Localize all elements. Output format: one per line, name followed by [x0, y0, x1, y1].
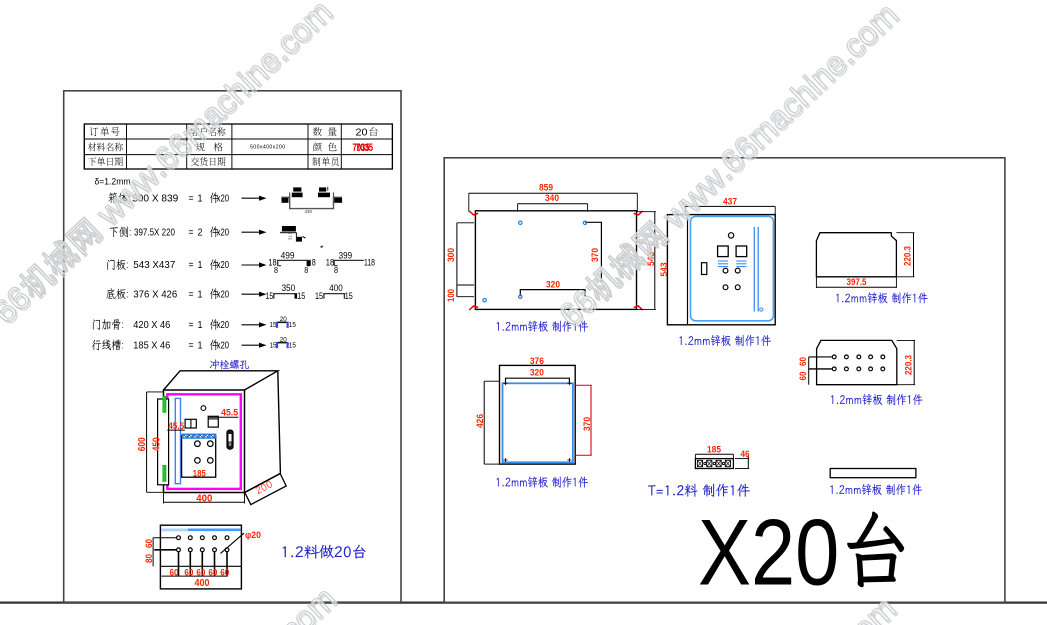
svg-text:2: 2	[198, 226, 203, 238]
svg-text:δ=1.2mm: δ=1.2mm	[95, 177, 131, 187]
svg-text:118: 118	[364, 258, 375, 268]
svg-text:499: 499	[281, 250, 295, 260]
svg-text:60: 60	[208, 567, 217, 578]
svg-text:60: 60	[220, 567, 229, 578]
svg-text:x20: x20	[217, 339, 230, 351]
svg-text:399: 399	[339, 250, 353, 260]
svg-text:600: 600	[137, 437, 148, 451]
svg-text:1: 1	[198, 339, 203, 351]
svg-text:20: 20	[356, 126, 368, 138]
svg-text::: :	[129, 226, 131, 238]
svg-text:1: 1	[198, 192, 203, 204]
svg-text:1: 1	[198, 259, 203, 271]
svg-text:1: 1	[198, 319, 203, 331]
svg-text:60: 60	[144, 539, 154, 548]
svg-text:15: 15	[289, 322, 296, 329]
svg-text:397.5: 397.5	[847, 277, 868, 288]
svg-text:31.5: 31.5	[288, 231, 293, 240]
svg-text:8: 8	[334, 266, 338, 275]
svg-text:80: 80	[144, 554, 154, 563]
svg-text:185: 185	[707, 445, 722, 456]
svg-text:100: 100	[446, 289, 457, 302]
svg-text:φ20: φ20	[245, 530, 261, 541]
svg-text:430: 430	[305, 209, 313, 214]
svg-text:400: 400	[196, 492, 212, 504]
svg-text:x20: x20	[217, 226, 230, 238]
svg-text:543 X437: 543 X437	[133, 259, 175, 271]
svg-text:60: 60	[184, 567, 193, 578]
svg-text:=: =	[189, 288, 194, 300]
svg-text:60: 60	[798, 372, 808, 381]
svg-text:=: =	[189, 319, 194, 331]
svg-text:370: 370	[582, 417, 593, 431]
svg-text:350: 350	[282, 283, 296, 293]
svg-text:185: 185	[193, 468, 207, 479]
svg-text:426: 426	[475, 414, 486, 428]
svg-text:20: 20	[280, 337, 288, 343]
svg-text:859: 859	[539, 183, 553, 194]
svg-text:437: 437	[723, 196, 737, 207]
svg-text::: :	[126, 288, 128, 300]
svg-text:20: 20	[280, 317, 288, 323]
svg-text:370: 370	[590, 248, 601, 262]
svg-text:400: 400	[195, 577, 210, 589]
svg-text:400: 400	[329, 283, 343, 293]
svg-text:x20: x20	[217, 192, 230, 204]
svg-text:376 X 426: 376 X 426	[133, 288, 177, 300]
svg-text:=: =	[189, 226, 194, 238]
svg-text:8: 8	[304, 266, 308, 275]
svg-text:x20: x20	[217, 259, 230, 271]
svg-text:340: 340	[545, 193, 559, 204]
svg-text:1: 1	[198, 288, 203, 300]
svg-text:46: 46	[741, 449, 750, 459]
svg-text:376: 376	[530, 356, 544, 367]
svg-text:15: 15	[289, 342, 296, 349]
svg-text:420 X 46: 420 X 46	[133, 319, 170, 331]
svg-text:8: 8	[312, 258, 316, 268]
svg-text:220.3: 220.3	[903, 246, 914, 266]
svg-text::: :	[122, 339, 124, 351]
svg-text:15: 15	[270, 322, 277, 329]
svg-text:45.5: 45.5	[221, 407, 239, 418]
svg-text:=: =	[189, 192, 194, 204]
svg-text:300: 300	[446, 248, 457, 262]
svg-text:450: 450	[151, 437, 162, 451]
svg-text:543: 543	[659, 263, 670, 277]
svg-text:x20: x20	[217, 288, 230, 300]
svg-text:X20: X20	[698, 500, 839, 605]
svg-text:60: 60	[798, 357, 808, 366]
svg-text:18: 18	[326, 258, 334, 268]
svg-text:8: 8	[274, 266, 278, 275]
svg-text:15: 15	[266, 291, 274, 301]
svg-text:15: 15	[315, 291, 323, 301]
svg-text:7035: 7035	[356, 142, 373, 154]
svg-text:=: =	[189, 259, 194, 271]
svg-text:x20: x20	[217, 319, 230, 331]
svg-text:500x400x200: 500x400x200	[250, 144, 286, 150]
svg-text:185 X 46: 185 X 46	[133, 339, 170, 351]
svg-text:=: =	[189, 339, 194, 351]
svg-text:220.3: 220.3	[903, 355, 914, 375]
svg-text::: :	[122, 319, 124, 331]
svg-text:15: 15	[297, 291, 305, 301]
svg-text:15: 15	[270, 342, 277, 349]
svg-text:397.5X 220: 397.5X 220	[134, 226, 175, 238]
svg-text:60: 60	[170, 567, 179, 578]
svg-text::: :	[126, 259, 128, 271]
svg-text:320: 320	[530, 367, 544, 378]
svg-text:320: 320	[546, 279, 560, 290]
svg-text:15: 15	[345, 291, 353, 301]
